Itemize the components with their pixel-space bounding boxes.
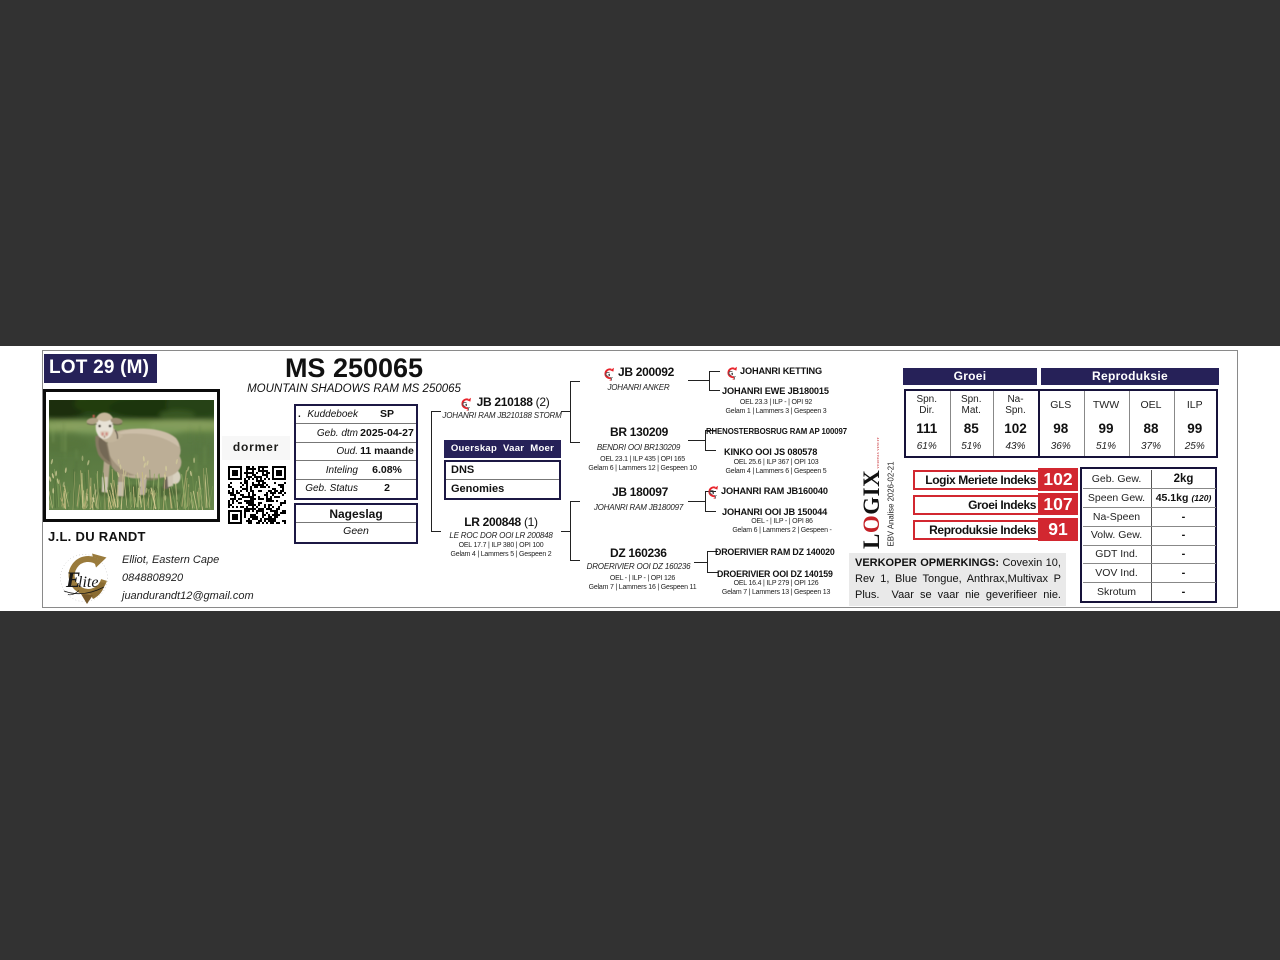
svg-text:T: T — [733, 376, 736, 380]
svg-text:lite: lite — [78, 574, 98, 591]
svg-text:T: T — [714, 495, 717, 499]
svg-text:T: T — [610, 377, 613, 381]
